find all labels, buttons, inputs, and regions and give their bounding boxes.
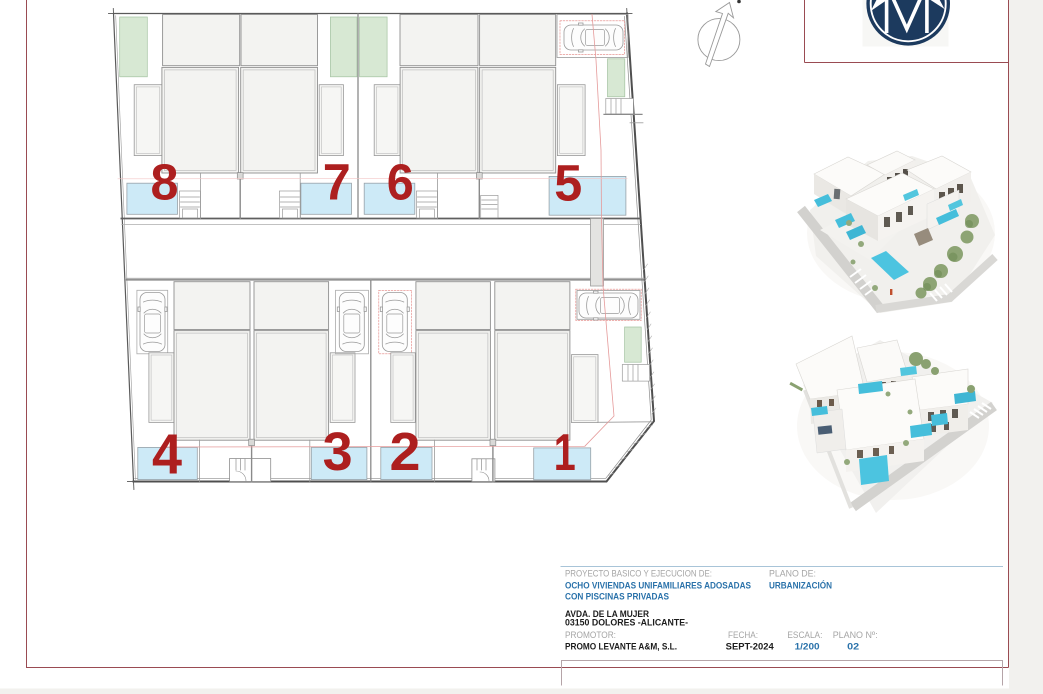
- svg-text:PLANO DE:: PLANO DE:: [769, 569, 816, 580]
- svg-text:5: 5: [554, 155, 582, 212]
- svg-text:1: 1: [554, 424, 576, 482]
- svg-text:SEPT-2024: SEPT-2024: [726, 640, 775, 651]
- svg-text:1/200: 1/200: [795, 640, 820, 651]
- svg-text:OCHO VIVIENDAS UNIFAMILIARES A: OCHO VIVIENDAS UNIFAMILIARES ADOSADAS: [565, 580, 751, 591]
- svg-text:03150 DOLORES -ALICANTE-: 03150 DOLORES -ALICANTE-: [565, 617, 688, 628]
- svg-text:CON PISCINAS PRIVADAS: CON PISCINAS PRIVADAS: [565, 591, 669, 602]
- svg-text:PROYECTO BASICO Y EJECUCION: PROYECTO BASICO Y EJECUCION DE:: [565, 569, 712, 580]
- svg-text:02: 02: [847, 640, 859, 651]
- svg-text:PROMO LEVANTE A&M, S.L.: PROMO LEVANTE A&M, S.L.: [565, 640, 677, 651]
- svg-text:2: 2: [390, 422, 421, 482]
- svg-text:4: 4: [152, 423, 182, 487]
- svg-text:7: 7: [323, 154, 351, 211]
- svg-text:3: 3: [323, 422, 353, 482]
- svg-text:URBANIZACIÓN: URBANIZACIÓN: [769, 580, 832, 591]
- svg-text:6: 6: [387, 154, 414, 211]
- svg-text:8: 8: [151, 154, 179, 211]
